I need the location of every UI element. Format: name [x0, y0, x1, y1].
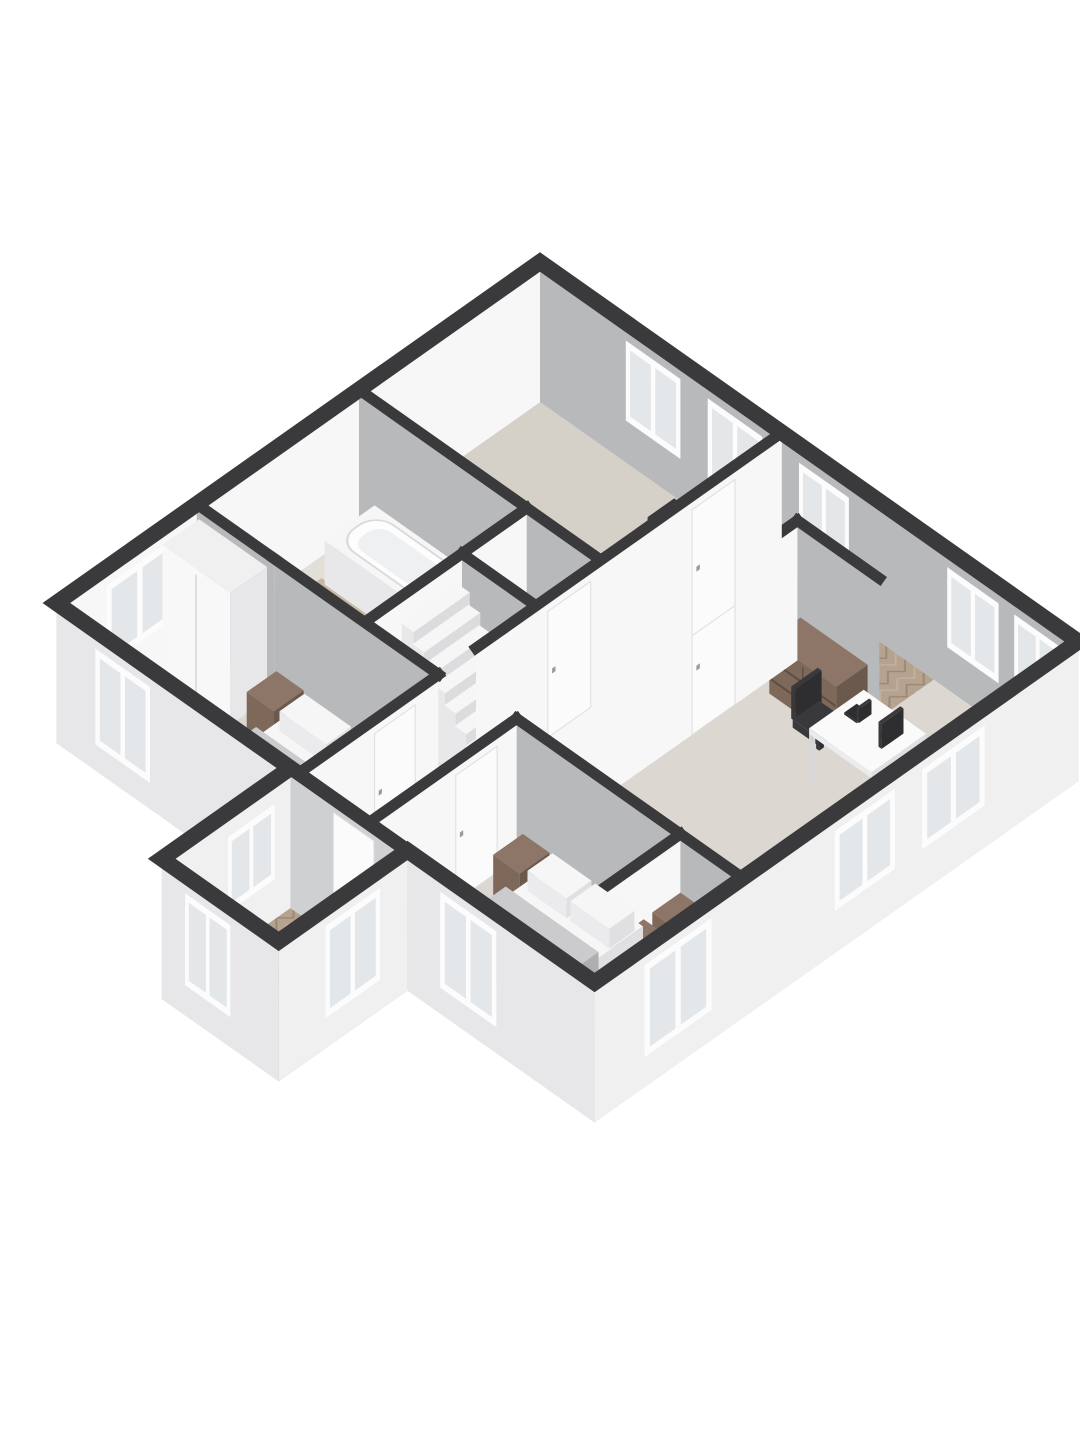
- closet-door-seam: [195, 574, 197, 697]
- floorplan-stage: [0, 0, 1080, 1440]
- desk-leg: [809, 732, 815, 787]
- floorplan-svg: [0, 0, 1080, 1440]
